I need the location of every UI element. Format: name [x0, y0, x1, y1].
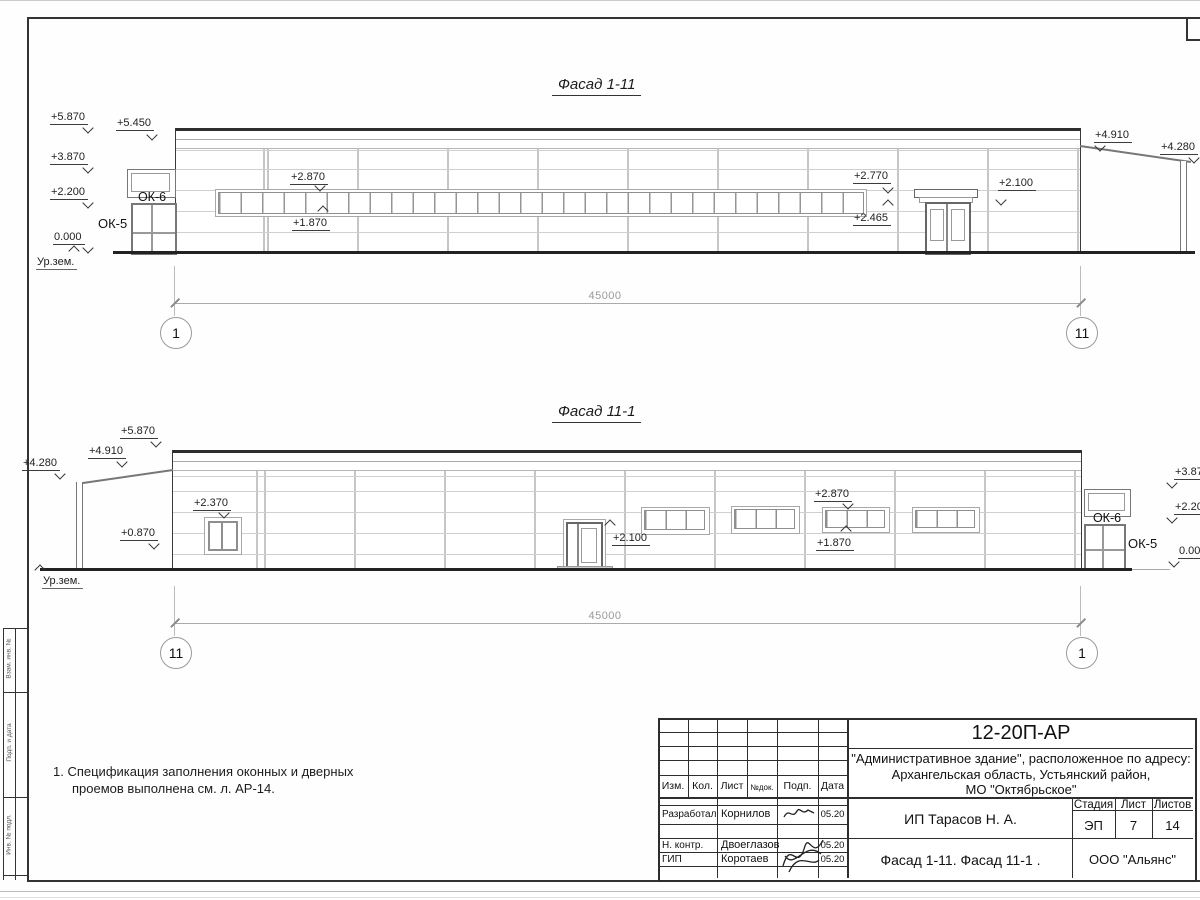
tb-line — [658, 824, 847, 825]
elevation-mark: 0.000 — [1178, 545, 1200, 559]
elevation-mark: +2.770 — [853, 170, 891, 184]
annex-right-post — [1180, 161, 1187, 251]
elevation-mark: 0.000 — [53, 231, 85, 245]
dimension-value: 45000 — [585, 610, 625, 622]
extension-line — [1080, 266, 1081, 316]
axis-bubble-11: 11 — [1066, 317, 1098, 349]
note-line-2: проемов выполнена см. л. АР-14. — [72, 781, 275, 796]
sheet-label: Лист — [1115, 799, 1152, 811]
axis-bubble-11: 11 — [160, 637, 192, 669]
staff-role: Н. контр. — [662, 840, 703, 851]
staff-role: Разработал — [662, 809, 716, 820]
extension-line — [174, 586, 175, 636]
staff-date: 05.20 — [818, 809, 847, 820]
tb-line — [848, 838, 1193, 839]
sheets-label: Листов — [1152, 799, 1193, 811]
tb-line — [658, 775, 847, 776]
facade-1-11-title: Фасад 1-11 — [552, 76, 641, 96]
client-name: ИП Тарасов Н. А. — [849, 811, 1072, 827]
drawing-sheet: Фасад 1-11 ОК-6 ОК-5 Ур.зем. +5.870 +5.4… — [0, 0, 1200, 900]
window-3pane-glass — [734, 509, 795, 529]
document-code: 12-20П-АР — [849, 722, 1193, 745]
stamp-strip-line — [3, 628, 4, 880]
tb-line — [658, 760, 847, 761]
frame-corner-box-line-h — [1186, 39, 1200, 41]
page-edge-bottom2 — [0, 897, 1200, 898]
dimension-value: 45000 — [585, 290, 625, 302]
elevation-mark: +2.200 — [50, 186, 88, 200]
parapet-line — [173, 461, 1081, 462]
frame-corner-box-line-v — [1186, 17, 1188, 39]
entrance-transom-glass-bottom — [1088, 493, 1125, 511]
col-data: Дата — [818, 780, 847, 792]
sheet-value: 7 — [1115, 818, 1152, 833]
dimension-line — [175, 623, 1081, 624]
object-line-2: Архангельская область, Устьянский район, — [849, 767, 1193, 782]
ground-level-label: Ур.зем. — [36, 256, 77, 270]
ok6-label-top-facade: ОК-6 — [130, 190, 174, 204]
ok6-label-bottom-facade: ОК-6 — [1086, 511, 1128, 525]
col-podp: Подп. — [777, 780, 818, 792]
staff-name: Коротаев — [721, 853, 769, 865]
ground-line-ext — [1132, 569, 1170, 570]
staff-name: Двоеглазов — [721, 839, 779, 851]
window-3pane-glass — [825, 510, 885, 528]
col-izm: Изм. — [658, 780, 688, 792]
facade-11-1-title: Фасад 11-1 — [552, 403, 641, 423]
entrance-door-ok5 — [131, 203, 177, 255]
dimension-line — [175, 303, 1081, 304]
entrance-door-ok5-bottom — [1084, 524, 1126, 570]
stamp-label-inv: Инв. № подл. — [6, 796, 13, 874]
signature-2 — [777, 832, 827, 876]
ground-line-top-facade — [113, 251, 1195, 254]
window-2370-glass — [208, 521, 238, 551]
object-line-1: "Административное здание", расположенное… — [849, 751, 1193, 766]
tb-line — [658, 805, 847, 806]
parapet-line — [176, 139, 1080, 140]
col-ndok: №док. — [747, 783, 777, 792]
elevation-mark: +2.200 — [1174, 501, 1200, 515]
object-line-3: МО "Октябрьское" — [849, 782, 1193, 797]
tb-line — [848, 748, 1193, 749]
ground-level-label: Ур.зем. — [42, 575, 83, 589]
axis-bubble-1: 1 — [1066, 637, 1098, 669]
stamp-strip-line — [15, 628, 16, 880]
stamp-label-podp: Подп. и дата — [6, 690, 13, 795]
elevation-mark: +5.450 — [116, 117, 154, 131]
company-name: ООО "Альянс" — [1072, 852, 1193, 867]
col-list: Лист — [717, 780, 747, 792]
door-11-1 — [566, 522, 603, 571]
col-kol: Кол. — [688, 780, 717, 792]
elevation-mark: +3.870 — [1174, 466, 1200, 480]
stage-label: Стадия — [1072, 799, 1115, 811]
staff-name: Корнилов — [721, 808, 770, 820]
elevation-mark: +5.870 — [120, 425, 158, 439]
elevation-mark: +2.100 — [998, 177, 1036, 191]
staff-role: ГИП — [662, 854, 682, 865]
extension-line — [1080, 586, 1081, 636]
sheet-title: Фасад 1-11. Фасад 11-1 . — [849, 852, 1072, 868]
elevation-mark: +5.870 — [50, 111, 88, 125]
elevation-mark: +1.870 — [816, 537, 854, 551]
ok5-label-bottom-facade: ОК-5 — [1128, 536, 1157, 551]
ground-line-bottom-facade — [40, 568, 1132, 571]
page-edge-top — [0, 0, 1200, 1]
sheets-value: 14 — [1152, 818, 1193, 833]
elevation-mark: +1.870 — [292, 217, 330, 231]
axis-bubble-1: 1 — [160, 317, 192, 349]
tb-line — [658, 746, 847, 747]
elevation-mark: +2.100 — [612, 532, 650, 546]
stage-value: ЭП — [1072, 818, 1115, 833]
elevation-mark: +4.280 — [22, 457, 60, 471]
note-line-1: 1. Спецификация заполнения оконных и две… — [53, 764, 353, 779]
stamp-label-vzam: Взам. инв. № — [6, 627, 13, 691]
ok5-label-top-facade: ОК-5 — [98, 216, 127, 231]
signature-1 — [782, 804, 816, 822]
extension-line — [174, 266, 175, 316]
page-edge-bottom — [0, 891, 1200, 892]
entrance-double-door — [925, 202, 971, 255]
window-3pane-glass — [915, 510, 975, 528]
stamp-strip-line — [3, 875, 27, 876]
ribbon-window-panes — [218, 192, 864, 214]
annex-left-post — [76, 482, 83, 568]
elevation-mark: +3.870 — [50, 151, 88, 165]
tb-line — [658, 732, 847, 733]
elevation-mark: +2.465 — [853, 212, 891, 226]
window-3pane-glass — [644, 510, 705, 530]
